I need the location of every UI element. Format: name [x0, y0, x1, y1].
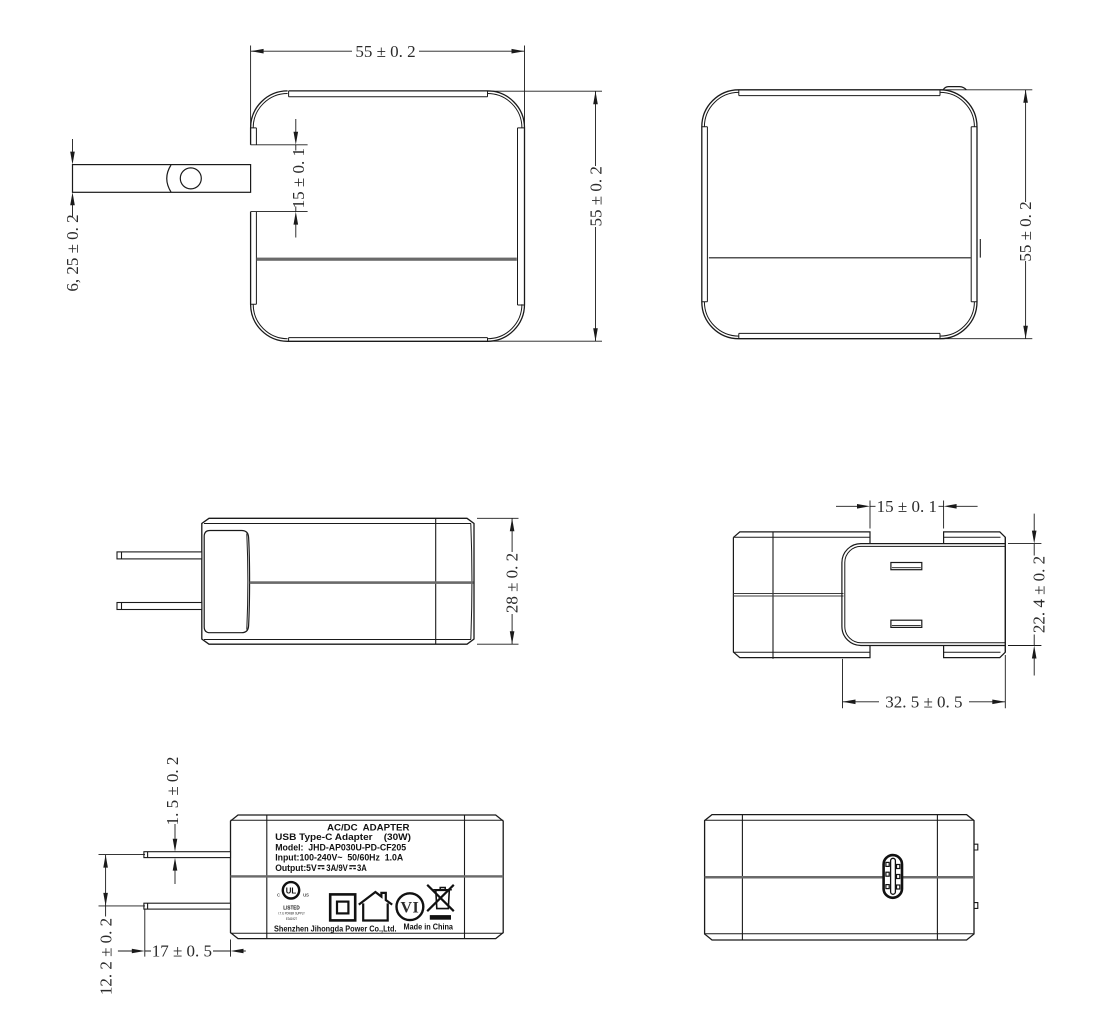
svg-text:UL: UL [286, 887, 297, 896]
svg-text:55 ± 0. 2: 55 ± 0. 2 [355, 42, 415, 61]
svg-text:I.T. E POWER SUPPLY: I.T. E POWER SUPPLY [278, 911, 305, 916]
svg-text:Output:5V: Output:5V [275, 863, 317, 873]
svg-text:3A: 3A [357, 863, 367, 873]
svg-text:12. 2 ± 0. 2: 12. 2 ± 0. 2 [96, 918, 115, 995]
svg-text:VI: VI [401, 899, 420, 916]
svg-text:55 ± 0. 2: 55 ± 0. 2 [587, 166, 606, 226]
svg-text:E341927: E341927 [286, 916, 298, 921]
svg-text:15 ± 0. 1: 15 ± 0. 1 [877, 497, 937, 516]
svg-text:17 ± 0. 5: 17 ± 0. 5 [152, 942, 212, 961]
svg-text:Made in China: Made in China [404, 922, 454, 932]
svg-text:Input:100-240V~ 50/60Hz 1.0A: Input:100-240V~ 50/60Hz 1.0A [275, 852, 404, 862]
svg-text:6, 25 ± 0. 2: 6, 25 ± 0. 2 [63, 214, 82, 291]
svg-text:22. 4 ± 0. 2: 22. 4 ± 0. 2 [1030, 556, 1049, 633]
svg-text:55 ± 0. 2: 55 ± 0. 2 [1016, 201, 1035, 261]
svg-text:15 ± 0. 1: 15 ± 0. 1 [289, 148, 308, 208]
svg-text:3A/9V: 3A/9V [326, 863, 348, 873]
svg-text:us: us [303, 892, 309, 898]
svg-text:28 ± 0. 2: 28 ± 0. 2 [503, 553, 522, 613]
svg-text:1. 5 ± 0. 2: 1. 5 ± 0. 2 [163, 757, 182, 826]
svg-text:32. 5 ± 0. 5: 32. 5 ± 0. 5 [885, 693, 962, 712]
svg-text:USB Type-C Adapter (30W): USB Type-C Adapter (30W) [275, 832, 411, 842]
svg-text:Model: JHD-AP030U-PD-CF205: Model: JHD-AP030U-PD-CF205 [275, 843, 406, 853]
svg-text:Shenzhen Jihongda Power Co.,Lt: Shenzhen Jihongda Power Co.,Ltd. [274, 924, 397, 934]
svg-text:c: c [277, 892, 280, 898]
